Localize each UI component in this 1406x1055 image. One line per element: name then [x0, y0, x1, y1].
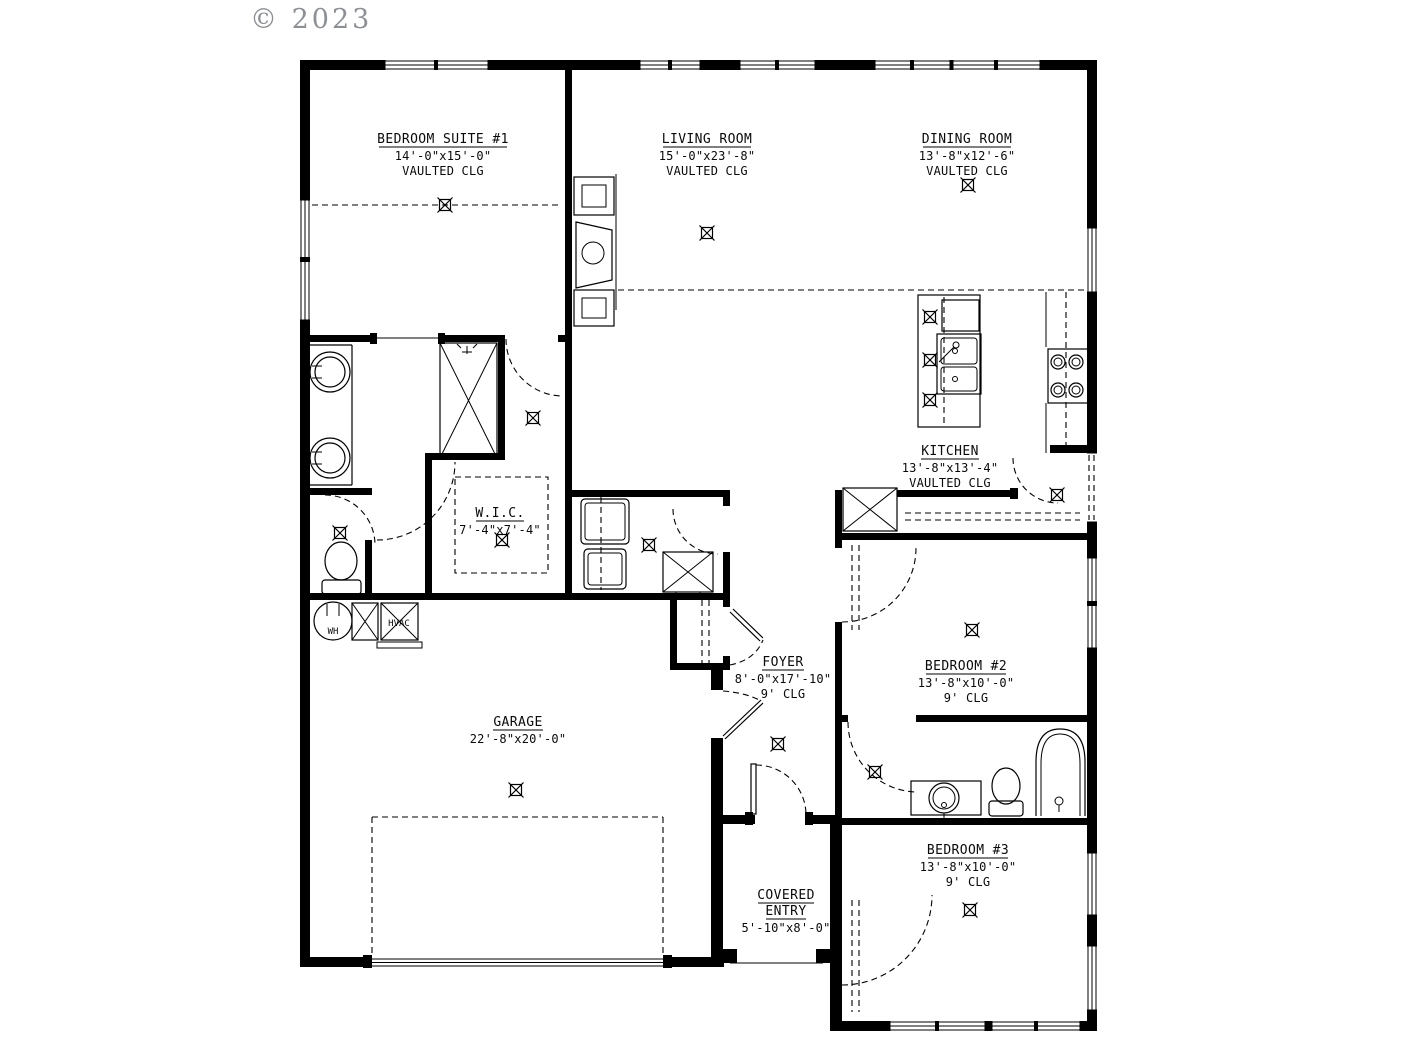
room-name: BEDROOM SUITE #1 — [377, 132, 509, 147]
room-label-kitchen: KITCHEN 13'-8"x13'-4" VAULTED CLG — [902, 444, 999, 490]
door-arc-wic — [377, 462, 455, 540]
window-left-bedroom-suite — [299, 200, 311, 320]
room-name: BEDROOM #2 — [925, 659, 1007, 674]
door-foyer-closet — [730, 609, 763, 665]
window-right-dining — [1086, 228, 1098, 292]
master-bath-fixtures — [310, 343, 497, 594]
ceiling-light-symbol — [700, 226, 715, 241]
room-dims: 22'-8"x20'-0" — [470, 732, 567, 746]
toilet-master — [322, 542, 361, 594]
fireplace-media-wall — [574, 174, 616, 326]
room-label-foyer: FOYER 8'-0"x17'-10" 9' CLG — [735, 655, 832, 701]
window-bottom-bedroom3-1 — [890, 1020, 985, 1032]
door-garage-side — [723, 691, 763, 739]
floor-plan-page: WH HVAC — [0, 0, 1406, 1055]
refrigerator — [843, 488, 897, 531]
garage-door-opening — [372, 956, 663, 968]
door-arc-bedroom3 — [842, 895, 932, 985]
floor-plan-svg: WH HVAC — [0, 0, 1406, 1055]
window-right-bedroom2 — [1086, 558, 1098, 648]
ceiling-light-symbol — [923, 353, 938, 368]
room-label-garage: GARAGE 22'-8"x20'-0" — [470, 715, 567, 746]
room-name: LIVING ROOM — [662, 132, 753, 147]
room-label-dining-room: DINING ROOM 13'-8"x12'-6" VAULTED CLG — [919, 132, 1016, 178]
dryer — [584, 549, 626, 589]
window-top-dining-2 — [953, 59, 1040, 71]
room-label-covered-entry: COVERED ENTRY 5'-10"x8'-0" — [741, 888, 830, 935]
washer — [581, 499, 629, 544]
ceiling-light-symbol — [923, 310, 938, 325]
room-ceiling: VAULTED CLG — [666, 164, 748, 178]
room-label-bedroom-suite-1: BEDROOM SUITE #1 14'-0"x15'-0" VAULTED C… — [377, 132, 509, 178]
ceiling-light-symbol — [965, 623, 980, 638]
room-dims: 8'-0"x17'-10" — [735, 672, 832, 686]
room-label-bedroom-3: BEDROOM #3 13'-8"x10'-0" 9' CLG — [920, 843, 1017, 889]
ceiling-light-symbol — [333, 526, 348, 541]
hvac-unit: HVAC — [377, 603, 422, 648]
room-dims: 13'-8"x12'-6" — [919, 149, 1016, 163]
sliding-door-dining — [1086, 453, 1098, 522]
door-front-entry — [751, 764, 806, 815]
window-top-dining-1 — [875, 59, 950, 71]
water-heater: WH — [314, 602, 352, 640]
hvac-label: HVAC — [388, 619, 410, 629]
shower — [440, 343, 497, 458]
ceiling-light-symbol — [642, 538, 657, 553]
room-label-living-room: LIVING ROOM 15'-0"x23'-8" VAULTED CLG — [659, 132, 756, 178]
room-dims: 13'-8"x10'-0" — [920, 860, 1017, 874]
utility-sink — [663, 552, 713, 596]
door-arc-laundry — [673, 509, 718, 554]
room-dims: 13'-8"x13'-4" — [902, 461, 999, 475]
ceiling-light-symbol — [771, 737, 786, 752]
room-name-line2: ENTRY — [765, 904, 806, 919]
room-dims: 5'-10"x8'-0" — [741, 921, 830, 935]
ceiling-light-symbol — [1050, 488, 1065, 503]
room-ceiling: VAULTED CLG — [926, 164, 1008, 178]
window-right-bedroom3-2 — [1086, 946, 1098, 1010]
utility-box — [352, 603, 378, 640]
room-label-bedroom-2: BEDROOM #2 13'-8"x10'-0" 9' CLG — [918, 659, 1015, 705]
room-dims: 14'-0"x15'-0" — [395, 149, 492, 163]
room-label-wic: W.I.C. 7'-4"x7'-4" — [459, 506, 541, 537]
window-top-living-2 — [740, 59, 815, 71]
room-name-line1: COVERED — [757, 888, 815, 903]
door-arc-bath2 — [848, 722, 918, 792]
interior-walls — [309, 69, 1088, 968]
room-name: FOYER — [762, 655, 803, 670]
room-name: W.I.C. — [475, 506, 524, 521]
room-dims: 7'-4"x7'-4" — [459, 523, 541, 537]
room-dims: 13'-8"x10'-0" — [918, 676, 1015, 690]
room-name: DINING ROOM — [922, 132, 1013, 147]
window-top-bedroom-suite — [385, 59, 488, 71]
room-ceiling: VAULTED CLG — [402, 164, 484, 178]
room-ceiling: 9' CLG — [761, 687, 806, 701]
dashed-lines — [312, 205, 1085, 1012]
ceiling-light-symbol — [923, 393, 938, 408]
ceiling-lights — [333, 178, 1065, 918]
hall-bath-fixtures — [911, 729, 1085, 820]
ceiling-light-symbol — [868, 765, 883, 780]
door-arc-bedroom2 — [842, 548, 916, 622]
room-ceiling: 9' CLG — [944, 691, 989, 705]
toilet-hall-bath — [989, 768, 1023, 816]
room-name: GARAGE — [493, 715, 542, 730]
door-arc-toilet-room — [325, 495, 375, 545]
room-dims: 15'-0"x23'-8" — [659, 149, 756, 163]
ceiling-light-symbol — [438, 198, 453, 213]
water-heater-label: WH — [328, 627, 339, 637]
window-bottom-bedroom3-2 — [992, 1020, 1080, 1032]
ceiling-light-symbol — [961, 178, 976, 193]
room-name: KITCHEN — [921, 444, 979, 459]
ceiling-light-symbol — [963, 903, 978, 918]
range-stove — [1046, 292, 1088, 453]
room-ceiling: 9' CLG — [946, 875, 991, 889]
ceiling-light-symbol — [526, 411, 541, 426]
room-ceiling: VAULTED CLG — [909, 476, 991, 490]
door-arc-bedroom-suite — [506, 339, 563, 396]
window-right-bedroom3-1 — [1086, 853, 1098, 915]
room-name: BEDROOM #3 — [927, 843, 1009, 858]
window-top-living-1 — [640, 59, 700, 71]
ceiling-light-symbol — [509, 783, 524, 798]
copyright-watermark: © 2023 — [250, 4, 372, 35]
bathtub — [1036, 729, 1085, 816]
